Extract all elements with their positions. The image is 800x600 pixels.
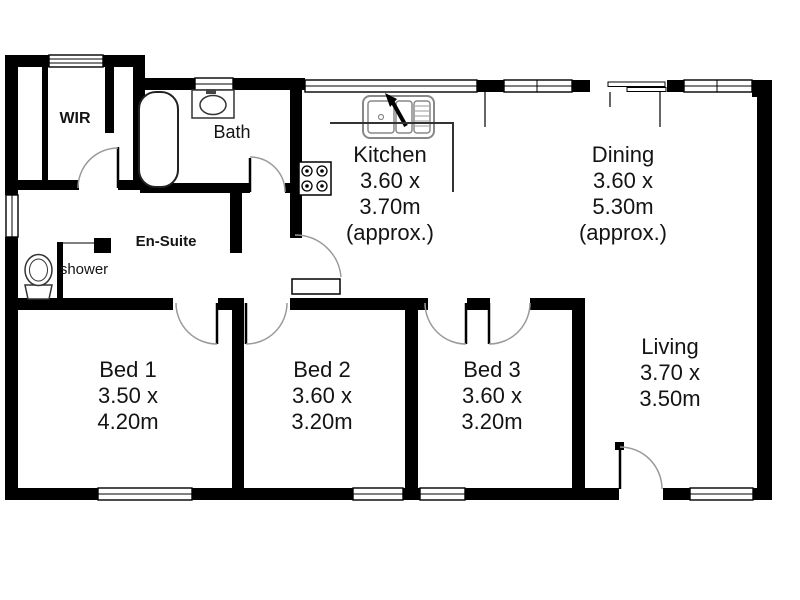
room-name: Bed 2 <box>291 357 352 383</box>
room-dim: 3.60 x <box>346 168 434 194</box>
vanity-basin <box>192 89 234 118</box>
toilet <box>25 255 52 300</box>
door-bed1 <box>176 303 217 344</box>
door-wir <box>78 147 118 188</box>
room-dim: 3.50m <box>639 386 700 412</box>
room-label-dining: Dining 3.60 x 5.30m (approx.) <box>579 142 667 246</box>
room-name: Bed 1 <box>97 357 158 383</box>
floor-plan: Kitchen 3.60 x 3.70m (approx.) Dining 3.… <box>0 0 800 600</box>
room-dim: 5.30m <box>579 194 667 220</box>
window-bed3 <box>420 488 465 500</box>
room-name: Dining <box>579 142 667 168</box>
room-dim: 3.70m <box>346 194 434 220</box>
area-label-bath: Bath <box>213 122 250 143</box>
room-dim: 3.20m <box>291 409 352 435</box>
room-dim: 4.20m <box>97 409 158 435</box>
window-dining-right <box>684 80 752 92</box>
area-label-wir: WIR <box>59 110 90 128</box>
window-ensuite-side <box>6 195 18 237</box>
door-bath <box>250 157 285 192</box>
window-living <box>690 488 753 500</box>
door-bed2 <box>246 303 287 344</box>
room-label-living: Living 3.70 x 3.50m <box>639 334 700 412</box>
room-note: (approx.) <box>346 220 434 246</box>
room-label-bed3: Bed 3 3.60 x 3.20m <box>461 357 522 435</box>
stove <box>299 162 331 195</box>
floor-plan-drawing <box>0 0 800 600</box>
window-bed1 <box>98 488 192 500</box>
room-dim: 3.50 x <box>97 383 158 409</box>
window-entry-top <box>49 55 103 67</box>
room-note: (approx.) <box>579 220 667 246</box>
bathtub <box>139 92 178 187</box>
room-dim: 3.60 x <box>461 383 522 409</box>
room-name: Kitchen <box>346 142 434 168</box>
door-kitchen-hall <box>292 235 341 294</box>
sliding-door <box>608 82 666 127</box>
room-name: Living <box>639 334 700 360</box>
window-bath <box>195 78 233 90</box>
kitchen-sink <box>363 93 434 138</box>
door-entry-living <box>620 447 662 489</box>
room-label-kitchen: Kitchen 3.60 x 3.70m (approx.) <box>346 142 434 246</box>
room-label-bed1: Bed 1 3.50 x 4.20m <box>97 357 158 435</box>
room-dim: 3.60 x <box>579 168 667 194</box>
window-dining-left <box>504 80 572 92</box>
room-dim: 3.60 x <box>291 383 352 409</box>
room-dim: 3.70 x <box>639 360 700 386</box>
area-label-ensuite: En-Suite <box>136 233 197 250</box>
room-name: Bed 3 <box>461 357 522 383</box>
room-label-bed2: Bed 2 3.60 x 3.20m <box>291 357 352 435</box>
window-kitchen <box>305 80 477 92</box>
room-dim: 3.20m <box>461 409 522 435</box>
door-bed3-left <box>425 303 466 344</box>
window-bed2 <box>353 488 403 500</box>
door-bed3-right <box>489 303 530 344</box>
area-label-shower: shower <box>60 261 108 278</box>
